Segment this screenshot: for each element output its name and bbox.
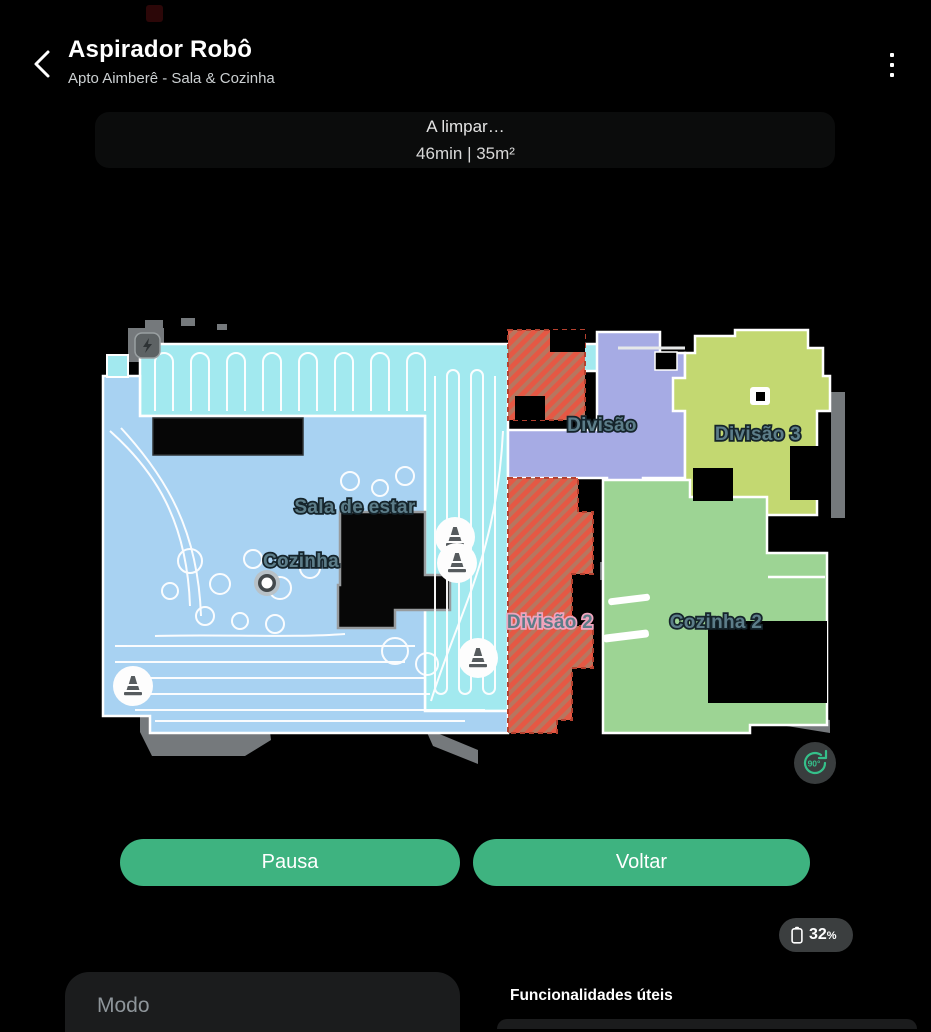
status-time-area: 46min | 35m² [0,144,931,164]
return-to-dock-button[interactable]: Voltar [473,839,810,886]
label-divisao: Divisão [567,415,637,436]
label-divisao-3: Divisão 3 [715,424,801,445]
battery-level: 32 [809,926,827,943]
battery-icon [791,926,803,944]
label-divisao-2: Divisão 2 [507,612,593,633]
battery-badge: 32% [779,918,853,952]
label-sala-de-estar: Sala de estar [294,497,415,518]
cone-marker-icon [113,666,153,706]
robot-position-marker [254,570,280,596]
vacuum-map[interactable]: Sala de estar Cozinha Divisão Divisão 3 … [95,316,845,786]
kebab-dot [890,73,894,77]
cone-marker-icon [437,543,477,583]
status-text: A limpar… [0,117,931,137]
back-button[interactable] [28,48,58,80]
screen-record-indicator [146,5,163,22]
chevron-left-icon [36,52,48,76]
page-title: Aspirador Robô [68,36,275,64]
pause-button[interactable]: Pausa [120,839,460,886]
rotate-90-icon: 90° [800,748,830,778]
map-canvas: Sala de estar Cozinha Divisão Divisão 3 … [95,316,845,786]
label-cozinha: Cozinha [263,551,339,572]
svg-text:90°: 90° [808,759,821,769]
room-dock-nook [107,355,128,377]
battery-percent-sign: % [827,930,837,942]
rotate-map-button[interactable]: 90° [794,742,836,784]
kebab-dot [890,63,894,67]
cone-marker-icon [458,638,498,678]
header: Aspirador Robô Apto Aimberê - Sala & Coz… [68,36,275,87]
useful-features-card[interactable] [497,1019,917,1029]
label-cozinha-2: Cozinha 2 [670,612,762,633]
no-go-zone-divisao-2[interactable] [508,478,593,733]
dock-station [135,333,160,358]
overflow-menu-button[interactable] [880,48,904,82]
page-subtitle: Apto Aimberê - Sala & Cozinha [68,70,275,87]
mode-card-title: Modo [97,994,150,1018]
kebab-dot [890,53,894,57]
useful-features-title: Funcionalidades úteis [510,987,673,1005]
